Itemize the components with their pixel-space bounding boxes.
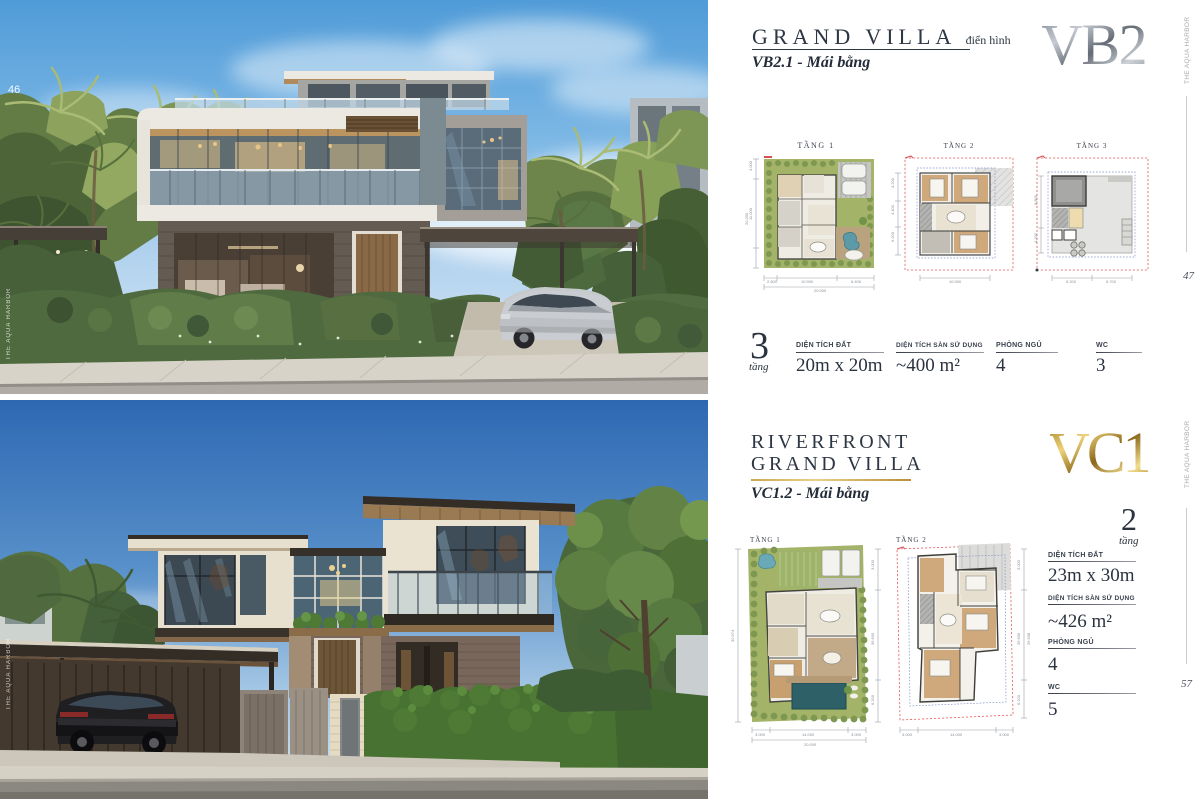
svg-text:2.500: 2.500 <box>767 279 778 284</box>
svg-text:14.000: 14.000 <box>950 732 963 737</box>
svg-text:5.200: 5.200 <box>1066 279 1077 284</box>
svg-text:3.000: 3.000 <box>999 732 1010 737</box>
svg-text:THE AQUA HARBOR: THE AQUA HARBOR <box>6 638 12 710</box>
svg-text:4.400: 4.400 <box>890 204 895 215</box>
svg-text:5.700: 5.700 <box>1106 279 1117 284</box>
svg-text:6.200: 6.200 <box>1016 694 1021 705</box>
svg-text:VB2: VB2 <box>1042 25 1146 67</box>
svg-text:39.600: 39.600 <box>870 632 875 645</box>
svg-text:3.000: 3.000 <box>755 732 766 737</box>
svg-text:3.000: 3.000 <box>851 732 862 737</box>
svg-text:6.400: 6.400 <box>851 279 862 284</box>
svg-text:6.200: 6.200 <box>890 231 895 242</box>
svg-text:THE AQUA HARBOR: THE AQUA HARBOR <box>6 288 12 360</box>
svg-text:TẦNG 1: TẦNG 1 <box>750 536 781 544</box>
svg-text:3.000: 3.000 <box>748 160 753 171</box>
svg-text:3.000: 3.000 <box>870 559 875 570</box>
svg-text:3.000: 3.000 <box>902 732 913 737</box>
svg-text:4.200: 4.200 <box>1033 232 1038 243</box>
svg-text:VC1: VC1 <box>1050 433 1149 475</box>
svg-text:20.300: 20.300 <box>744 212 749 225</box>
svg-text:39.600: 39.600 <box>1016 632 1021 645</box>
svg-text:14.000: 14.000 <box>802 732 815 737</box>
svg-text:20.000: 20.000 <box>804 742 817 747</box>
svg-text:10.900: 10.900 <box>949 279 962 284</box>
svg-text:TẦNG 3: TẦNG 3 <box>1077 142 1108 150</box>
svg-text:TẦNG 1: TẦNG 1 <box>797 140 834 150</box>
svg-text:30.574: 30.574 <box>730 629 735 642</box>
svg-text:3.000: 3.000 <box>1016 559 1021 570</box>
svg-text:26.908: 26.908 <box>1026 632 1031 645</box>
svg-text:46: 46 <box>8 84 20 96</box>
svg-text:4.200: 4.200 <box>890 177 895 188</box>
svg-text:8.800: 8.800 <box>1033 194 1038 205</box>
svg-text:TẦNG 2: TẦNG 2 <box>896 536 927 544</box>
svg-text:20.000: 20.000 <box>814 288 827 293</box>
svg-text:TẦNG 2: TẦNG 2 <box>944 142 975 150</box>
svg-text:10.900: 10.900 <box>801 279 814 284</box>
svg-text:6.200: 6.200 <box>870 694 875 705</box>
